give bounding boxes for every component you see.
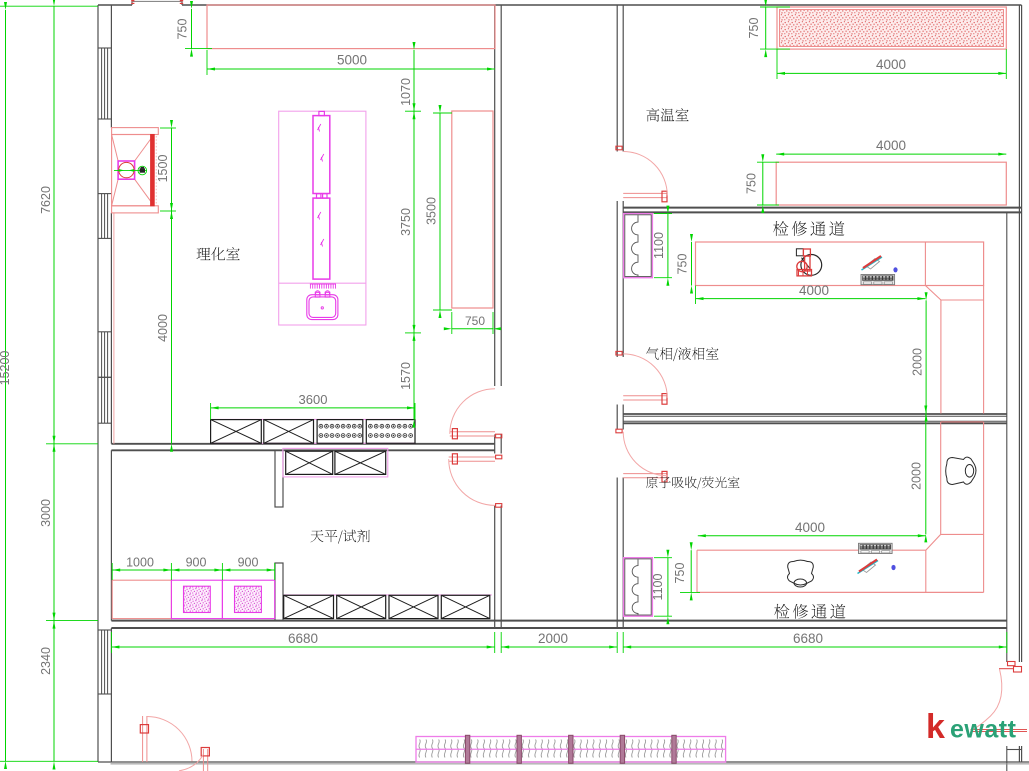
svg-text:2340: 2340	[39, 647, 53, 675]
svg-text:1100: 1100	[651, 574, 665, 601]
svg-text:4000: 4000	[156, 314, 170, 342]
svg-text:1570: 1570	[399, 362, 413, 390]
svg-text:1000: 1000	[126, 556, 154, 570]
svg-text:750: 750	[176, 19, 190, 40]
svg-text:1500: 1500	[156, 155, 170, 183]
svg-text:4000: 4000	[799, 283, 829, 298]
svg-text:3000: 3000	[39, 499, 53, 527]
svg-text:7620: 7620	[39, 186, 53, 214]
svg-text:900: 900	[186, 556, 207, 570]
svg-text:2000: 2000	[538, 631, 568, 646]
svg-text:750: 750	[673, 563, 687, 584]
svg-text:6680: 6680	[288, 631, 318, 646]
svg-text:4000: 4000	[876, 138, 906, 153]
svg-text:1100: 1100	[652, 232, 666, 259]
svg-text:4000: 4000	[795, 520, 825, 535]
svg-text:750: 750	[745, 173, 759, 194]
svg-text:750: 750	[747, 18, 761, 39]
svg-text:15200: 15200	[0, 351, 12, 386]
svg-text:2000: 2000	[911, 348, 925, 376]
svg-text:3600: 3600	[299, 392, 328, 407]
svg-text:900: 900	[238, 556, 259, 570]
svg-text:750: 750	[676, 254, 690, 275]
svg-text:750: 750	[465, 314, 485, 328]
svg-text:k: k	[926, 708, 945, 746]
svg-text:6680: 6680	[793, 631, 823, 646]
svg-text:5000: 5000	[337, 53, 367, 68]
svg-text:4000: 4000	[876, 57, 906, 72]
svg-text:3500: 3500	[425, 197, 439, 225]
svg-text:2000: 2000	[910, 462, 924, 490]
svg-text:1070: 1070	[399, 78, 413, 106]
svg-text:3750: 3750	[399, 208, 413, 236]
svg-text:ewatt: ewatt	[950, 716, 1017, 744]
